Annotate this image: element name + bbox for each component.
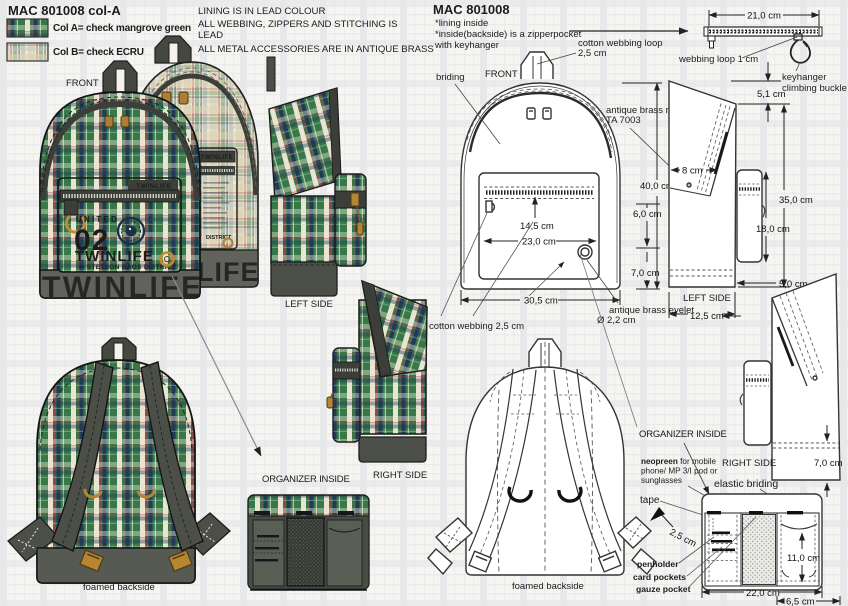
svg-text:12,5 cm: 12,5 cm <box>690 311 724 322</box>
svg-text:LEFT SIDE: LEFT SIDE <box>285 299 333 310</box>
svg-text:foamed backside: foamed backside <box>512 581 584 592</box>
svg-text:18,0 cm: 18,0 cm <box>756 224 790 235</box>
svg-text:22,0 cm: 22,0 cm <box>746 588 780 599</box>
svg-text:FRONT: FRONT <box>66 78 99 89</box>
svg-text:30,5 cm: 30,5 cm <box>524 296 558 307</box>
svg-text:MAC 801008 col-A: MAC 801008 col-A <box>8 3 121 18</box>
svg-text:8 cm: 8 cm <box>682 166 703 177</box>
svg-text:card pockets: card pockets <box>633 572 686 582</box>
svg-text:35,0 cm: 35,0 cm <box>779 195 813 206</box>
svg-text:webbing loop 1 cm: webbing loop 1 cm <box>678 54 758 65</box>
svg-text:*lining inside: *lining inside <box>435 18 488 29</box>
svg-text:sunglasses: sunglasses <box>641 476 682 485</box>
svg-text:UNITED: UNITED <box>76 215 119 224</box>
svg-text:cotton webbing 2,5 cm: cotton webbing 2,5 cm <box>429 321 524 332</box>
svg-text:TWINLIFE: TWINLIFE <box>136 183 172 190</box>
svg-text:TWINLIFE: TWINLIFE <box>75 248 154 265</box>
svg-text:7,0 cm: 7,0 cm <box>631 268 660 279</box>
svg-text:Col B= check ECRU: Col B= check ECRU <box>53 47 144 58</box>
svg-text:ALL METAL ACCESSORIES ARE IN A: ALL METAL ACCESSORIES ARE IN ANTIQUE BRA… <box>198 44 434 55</box>
svg-text:6,0 cm: 6,0 cm <box>633 209 662 220</box>
svg-text:TWINLIFE: TWINLIFE <box>42 271 204 304</box>
svg-text:phone/ MP 3/I pod or: phone/ MP 3/I pod or <box>641 467 718 476</box>
svg-text:foamed backside: foamed backside <box>83 582 155 593</box>
svg-text:6,5 cm: 6,5 cm <box>786 597 815 606</box>
svg-text:gauze pocket: gauze pocket <box>636 584 691 594</box>
svg-text:LEFT SIDE: LEFT SIDE <box>683 293 731 304</box>
svg-text:11,0 cm: 11,0 cm <box>787 553 820 564</box>
svg-text:LEAD: LEAD <box>198 30 223 41</box>
svg-text:ORGANIZER INSIDE: ORGANIZER INSIDE <box>639 429 727 440</box>
svg-text:Col A= check mangrove green: Col A= check mangrove green <box>53 23 191 34</box>
svg-text:tape: tape <box>640 495 660 506</box>
svg-text:LINING IS IN LEAD COLOUR: LINING IS IN LEAD COLOUR <box>198 6 325 17</box>
svg-text:2,5 cm: 2,5 cm <box>578 48 607 59</box>
svg-text:elastic briding: elastic briding <box>714 478 778 490</box>
svg-text:*inside(backside) is a zipperp: *inside(backside) is a zipperpocket <box>435 29 582 40</box>
svg-text:✂ STETSON BAGS DISTRICT: ✂ STETSON BAGS DISTRICT <box>79 264 176 271</box>
svg-text:neopreen for mobile: neopreen for mobile <box>641 457 717 466</box>
svg-text:with keyhanger: with keyhanger <box>434 40 499 51</box>
svg-text:TWINLIFE: TWINLIFE <box>201 155 233 161</box>
svg-text:TA 7003: TA 7003 <box>606 115 641 126</box>
svg-text:MAC 801008: MAC 801008 <box>433 2 510 17</box>
svg-text:RIGHT SIDE: RIGHT SIDE <box>373 470 427 481</box>
svg-text:5,1 cm: 5,1 cm <box>757 89 786 100</box>
svg-text:7,0 cm: 7,0 cm <box>814 458 843 469</box>
svg-text:FRONT: FRONT <box>485 69 518 80</box>
svg-text:climbing buckle: climbing buckle <box>782 83 847 94</box>
svg-text:14,5 cm: 14,5 cm <box>520 221 554 232</box>
svg-text:penholder: penholder <box>637 559 679 569</box>
svg-text:RIGHT SIDE: RIGHT SIDE <box>722 458 776 469</box>
svg-text:briding: briding <box>436 72 465 83</box>
svg-text:ALL WEBBING, ZIPPERS AND STITC: ALL WEBBING, ZIPPERS AND STITCHING IS <box>198 19 398 30</box>
svg-text:23,0 cm: 23,0 cm <box>522 237 556 248</box>
svg-text:ORGANIZER INSIDE: ORGANIZER INSIDE <box>262 474 350 485</box>
svg-text:LIFE: LIFE <box>197 257 260 287</box>
svg-text:keyhanger: keyhanger <box>782 72 826 83</box>
svg-text:21,0 cm: 21,0 cm <box>747 11 781 22</box>
